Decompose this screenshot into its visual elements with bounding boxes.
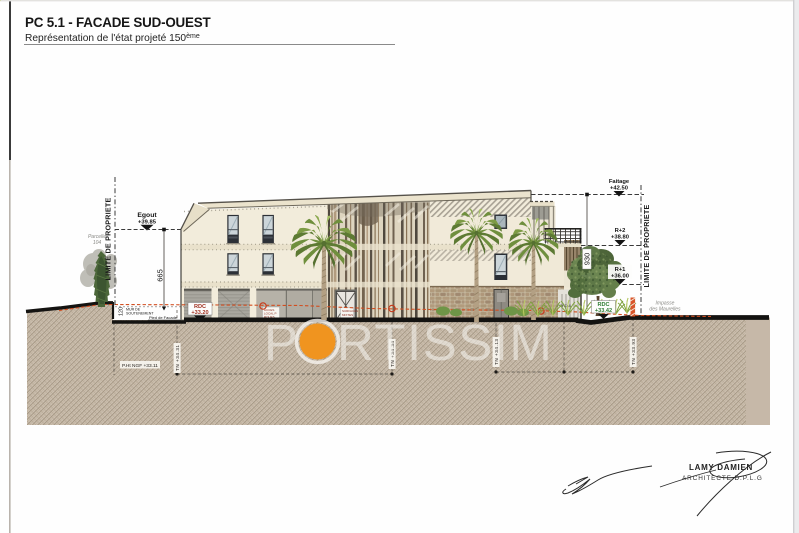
svg-text:+39.85: +39.85 (138, 220, 157, 226)
svg-text:PC 5.1 - FACADE SUD-OUEST: PC 5.1 - FACADE SUD-OUEST (25, 15, 211, 30)
svg-text:RTISSIM: RTISSIM (337, 314, 553, 371)
svg-text:Représentation de l'état proje: Représentation de l'état projeté 150ème (25, 33, 200, 44)
svg-text:LIMITE DE PROPRIETE: LIMITE DE PROPRIETE (642, 205, 651, 288)
svg-text:R+1: R+1 (615, 267, 627, 273)
svg-text:Faitage: Faitage (609, 179, 630, 185)
svg-text:+42.50: +42.50 (610, 186, 628, 192)
svg-text:des Maurelles: des Maurelles (649, 307, 681, 313)
svg-text:120: 120 (119, 307, 125, 316)
svg-text:+33.20: +33.20 (191, 310, 208, 316)
svg-text:P: P (264, 314, 300, 371)
svg-text:Egout: Egout (137, 212, 157, 219)
svg-text:P.Ht NGF +33.11: P.Ht NGF +33.11 (122, 363, 158, 369)
svg-text:+38.80: +38.80 (611, 235, 629, 241)
svg-text:930: 930 (583, 253, 592, 266)
svg-text:+33.42: +33.42 (595, 308, 612, 314)
svg-text:TN +34.31: TN +34.31 (175, 345, 180, 371)
svg-text:Pied de Facade: Pied de Facade (149, 315, 178, 320)
svg-text:TN +33.93: TN +33.93 (631, 339, 636, 365)
svg-text:665: 665 (156, 269, 165, 282)
svg-text:+36.00: +36.00 (611, 274, 629, 280)
svg-text:104: 104 (93, 240, 102, 246)
svg-text:R+2: R+2 (615, 228, 626, 234)
